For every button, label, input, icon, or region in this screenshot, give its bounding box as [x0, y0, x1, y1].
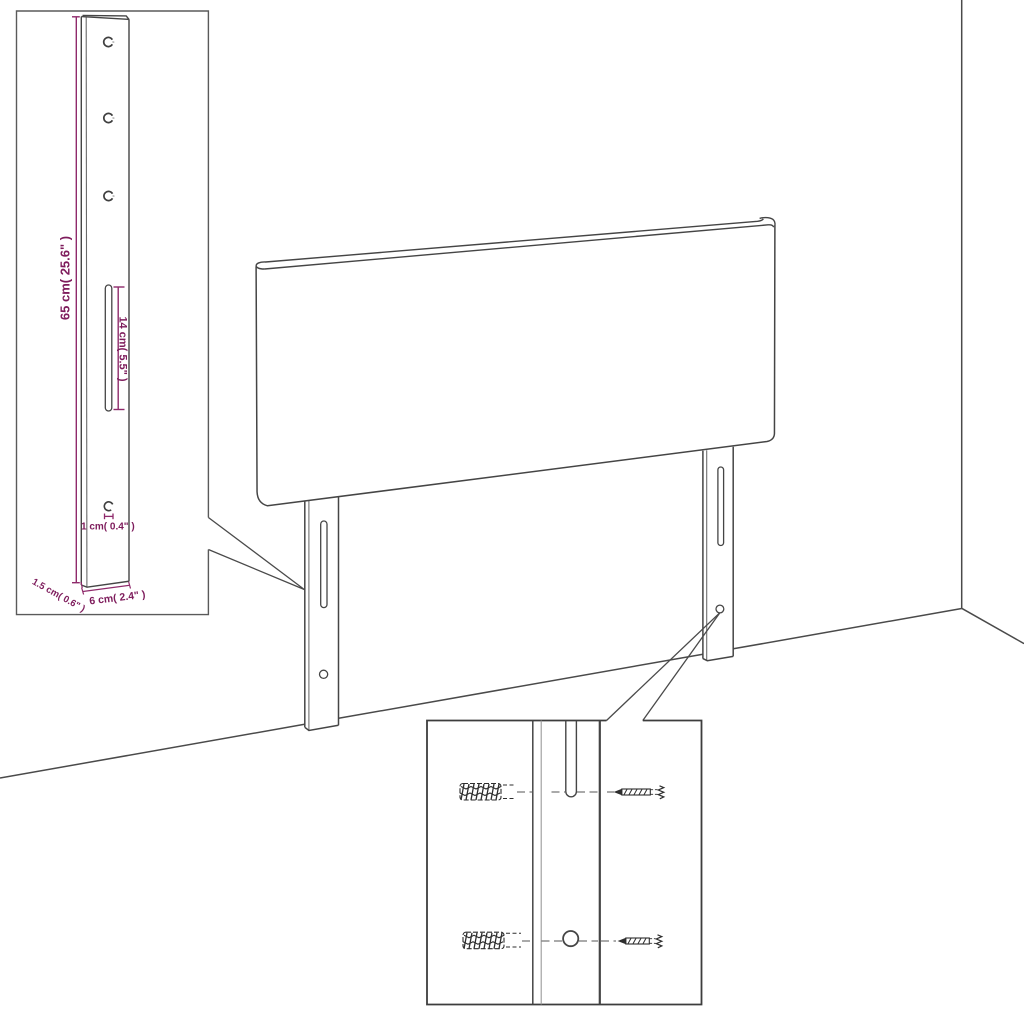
svg-text:14 cm( 5.5" ): 14 cm( 5.5" ): [117, 316, 129, 381]
svg-text:1 cm( 0.4" ): 1 cm( 0.4" ): [81, 522, 135, 533]
svg-text:65 cm( 25.6" ): 65 cm( 25.6" ): [58, 236, 73, 320]
